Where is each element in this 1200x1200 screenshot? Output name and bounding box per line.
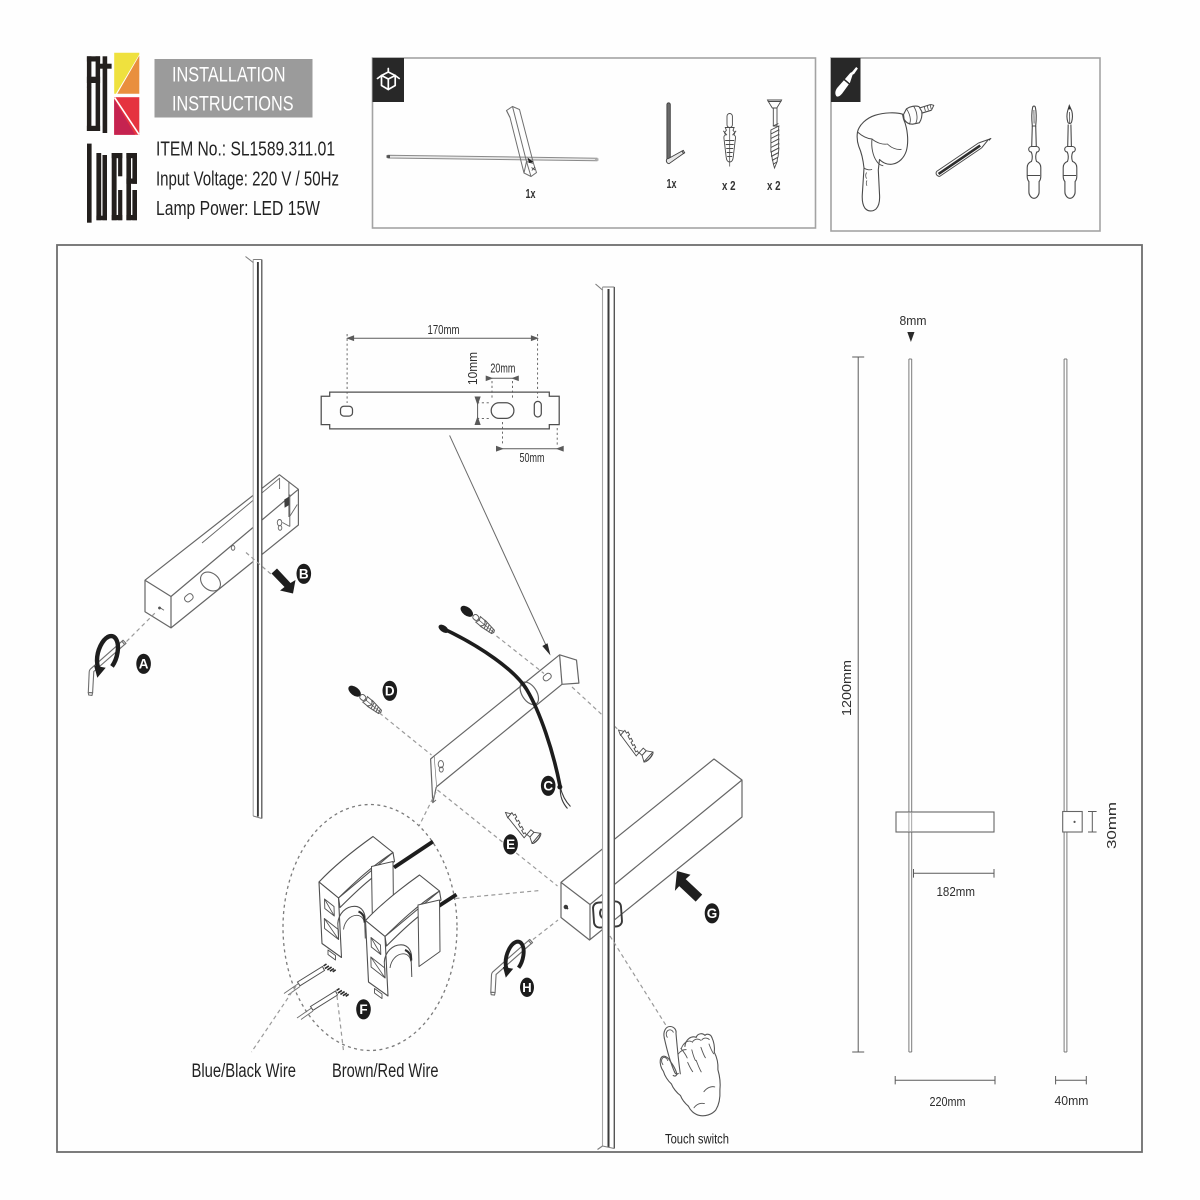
svg-text:1x: 1x <box>526 187 536 201</box>
svg-text:Input Voltage: 220 V / 50Hz: Input Voltage: 220 V / 50Hz <box>156 169 339 191</box>
svg-text:INSTALLATION: INSTALLATION <box>172 64 286 87</box>
svg-text:G: G <box>707 906 718 921</box>
svg-text:INSTRUCTIONS: INSTRUCTIONS <box>172 93 294 116</box>
svg-text:Touch switch: Touch switch <box>665 1132 729 1147</box>
svg-text:182mm: 182mm <box>937 884 976 899</box>
svg-text:Lamp Power: LED 15W: Lamp Power: LED 15W <box>156 198 320 220</box>
svg-text:Blue/Black Wire: Blue/Black Wire <box>192 1061 297 1082</box>
svg-text:50mm: 50mm <box>520 450 545 465</box>
svg-text:220mm: 220mm <box>930 1094 966 1109</box>
svg-text:H: H <box>522 980 531 995</box>
svg-text:20mm: 20mm <box>490 361 515 376</box>
svg-text:A: A <box>139 657 149 672</box>
svg-text:30mm: 30mm <box>1104 802 1119 849</box>
svg-text:Brown/Red Wire: Brown/Red Wire <box>332 1061 439 1082</box>
svg-text:E: E <box>506 837 515 852</box>
svg-text:1200mm: 1200mm <box>839 660 854 716</box>
svg-text:x 2: x 2 <box>767 179 781 193</box>
svg-text:10mm: 10mm <box>465 352 480 385</box>
svg-text:x 2: x 2 <box>722 179 736 193</box>
svg-text:1x: 1x <box>667 177 677 191</box>
svg-text:B: B <box>299 567 309 582</box>
svg-text:ITEM No.: SL1589.311.01: ITEM No.: SL1589.311.01 <box>156 139 335 161</box>
svg-text:F: F <box>359 1002 367 1017</box>
svg-text:8mm: 8mm <box>900 313 927 328</box>
svg-text:170mm: 170mm <box>428 322 460 337</box>
svg-text:C: C <box>543 779 553 794</box>
svg-text:D: D <box>385 684 395 699</box>
svg-text:40mm: 40mm <box>1055 1093 1089 1108</box>
